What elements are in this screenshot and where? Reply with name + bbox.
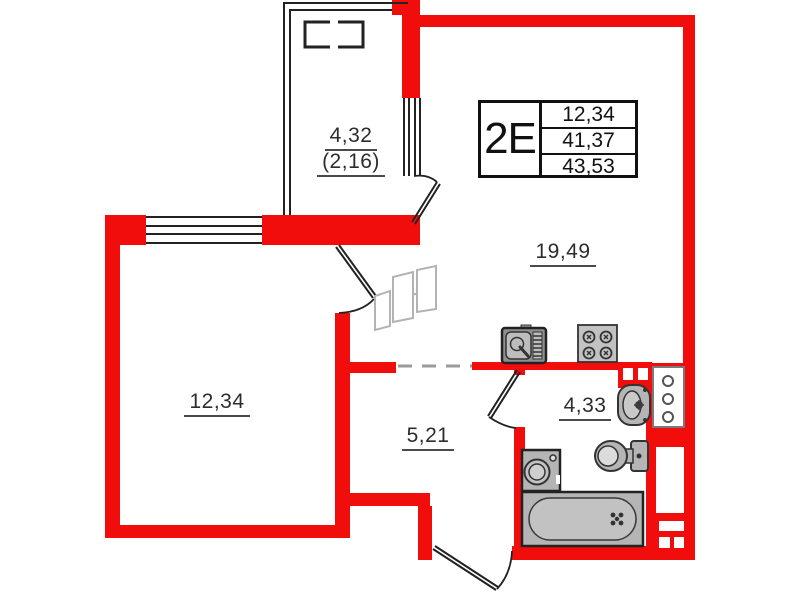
label-balcony-reduced: (2,16) — [303, 150, 399, 177]
unit-area-living: 12,34 — [542, 103, 635, 127]
unit-area-overall: 43,53 — [542, 153, 635, 179]
unit-areas-cells: 12,34 41,37 43,53 — [542, 103, 635, 175]
kitchen-sink-icon — [502, 325, 546, 363]
door-balcony — [412, 176, 440, 224]
unit-info-table: 2E 12,34 41,37 43,53 — [478, 100, 638, 178]
balcony-walls — [284, 3, 408, 215]
label-bathroom-area: 4,33 — [537, 394, 633, 421]
toilet-icon — [595, 441, 648, 471]
label-living-area: 19,49 — [515, 240, 611, 267]
unit-area-total: 41,37 — [542, 127, 635, 153]
label-hall-area: 5,21 — [380, 424, 476, 451]
bathtub-icon — [522, 492, 643, 546]
wardrobe-sketch-icon — [375, 266, 436, 330]
label-balcony-area: 4,32 — [303, 124, 399, 151]
floor-plan: 4,32 (2,16) 19,49 12,34 5,21 4,33 2E 12,… — [0, 0, 800, 600]
label-bedroom-area: 12,34 — [169, 390, 265, 417]
window-balcony — [404, 98, 420, 176]
riser-shaft-icon — [653, 367, 684, 427]
plan-drawing — [0, 0, 800, 600]
balcony-hatch-icon — [305, 22, 363, 47]
door-bedroom — [336, 245, 376, 313]
door-entrance — [433, 546, 512, 590]
stove-icon — [578, 325, 617, 362]
door-bathroom — [488, 370, 520, 428]
window-bedroom — [146, 217, 262, 243]
unit-type-cell: 2E — [481, 103, 542, 175]
washing-machine-icon — [522, 450, 560, 491]
